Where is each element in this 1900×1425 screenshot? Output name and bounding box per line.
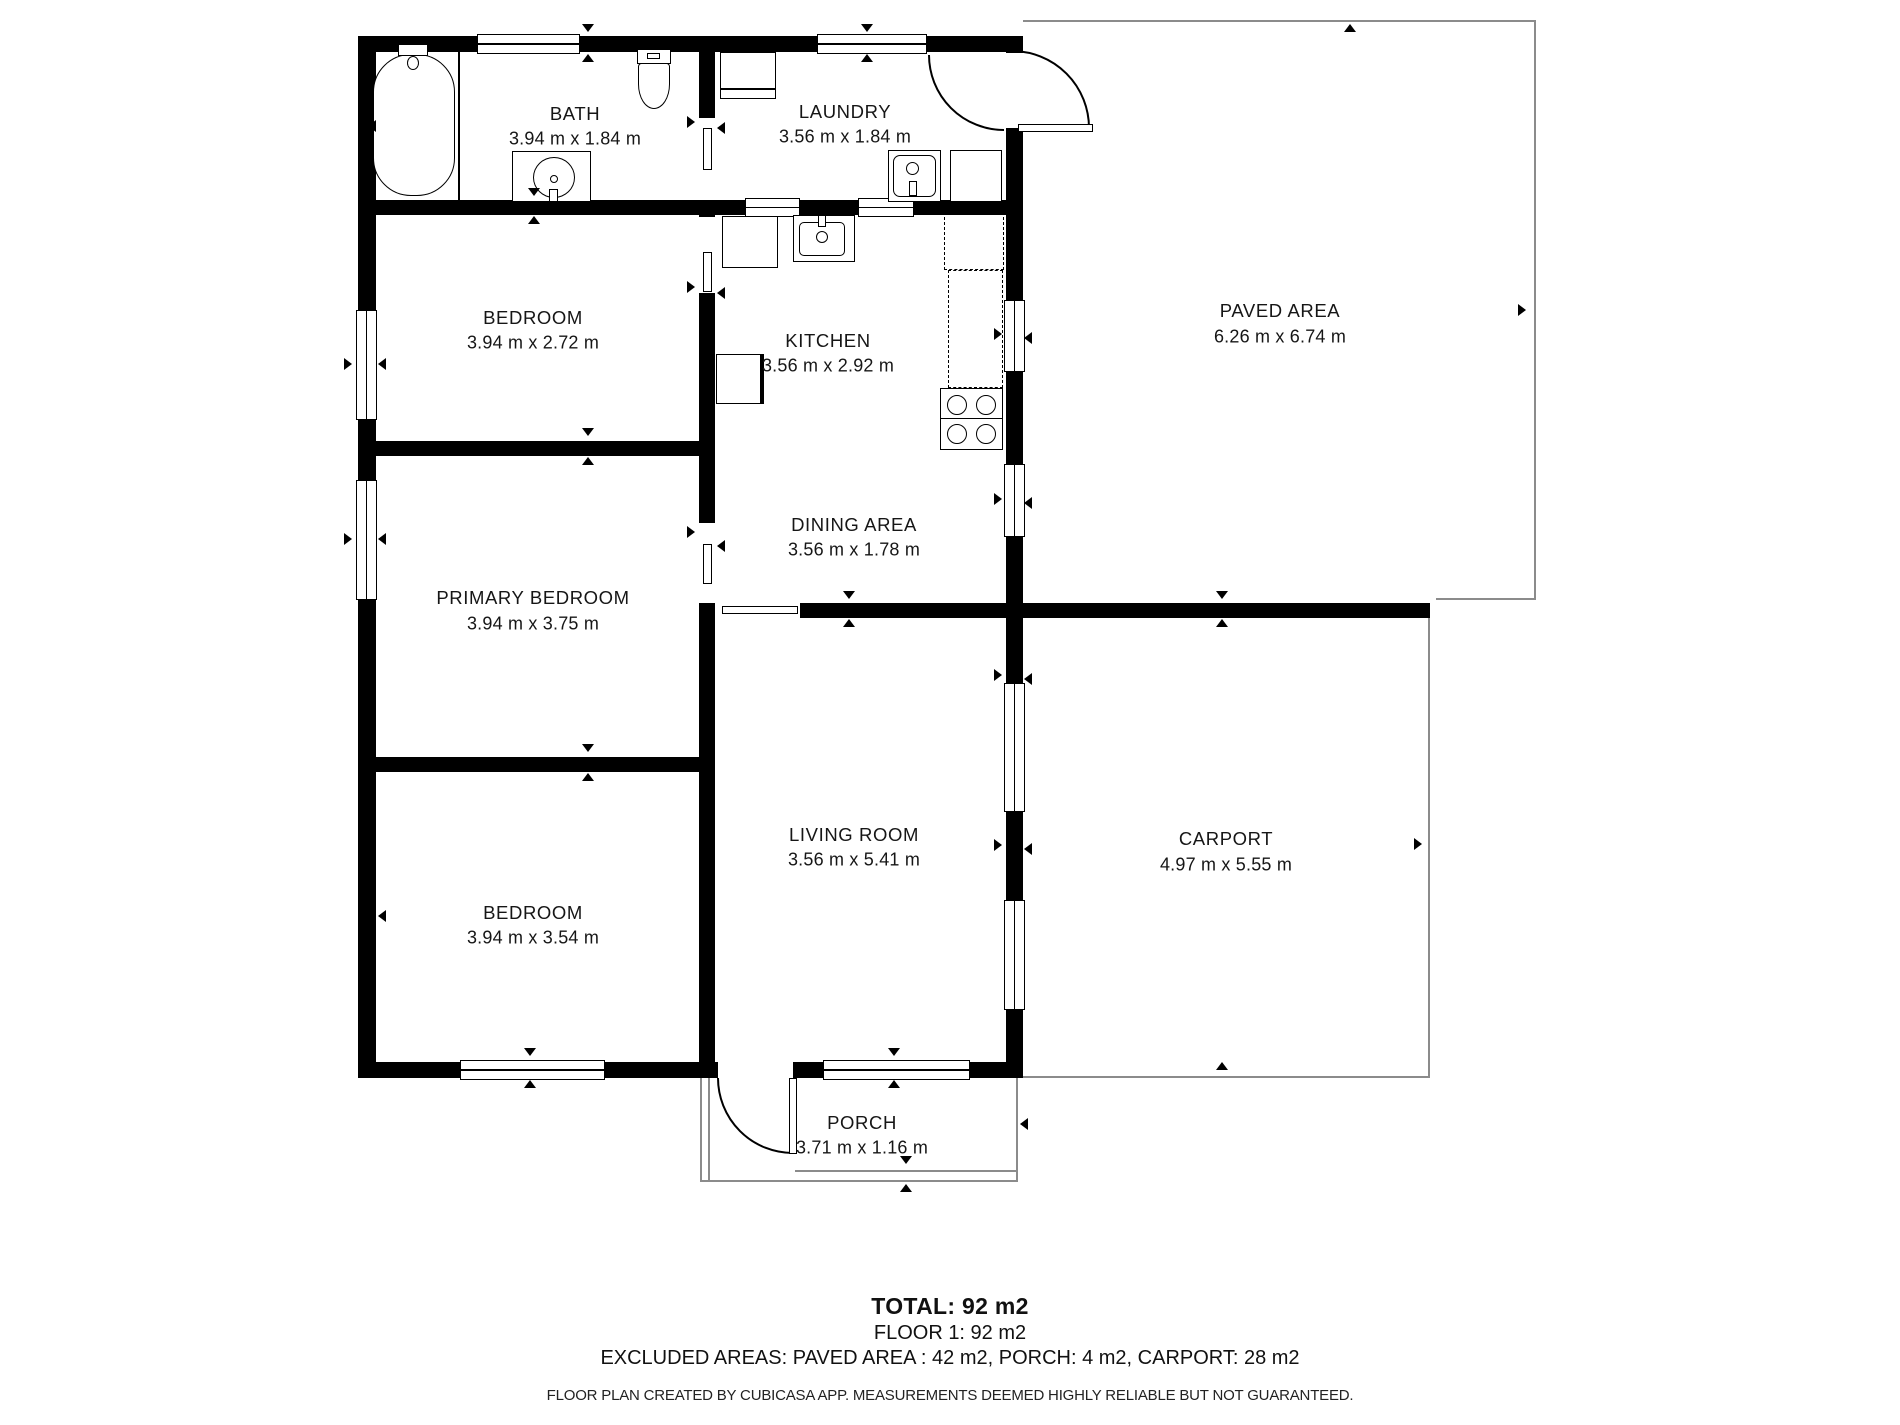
wall-divider-bath: [360, 200, 1023, 215]
front-door-arc: [718, 1078, 793, 1153]
window-bath-north: [477, 34, 580, 54]
measure-arrow: [687, 281, 695, 293]
measure-arrow: [1024, 673, 1032, 685]
room-label-bath: BATH: [550, 103, 600, 125]
measure-arrow: [528, 188, 540, 196]
measure-arrow: [1024, 843, 1032, 855]
measure-arrow: [1216, 591, 1228, 599]
door-opening-laundry-paved: [1006, 53, 1023, 128]
tub-alcove-line: [458, 52, 460, 200]
measure-arrow: [1414, 838, 1422, 850]
window-living-east-b: [1004, 900, 1025, 1010]
room-label-bedroom2: BEDROOM: [483, 902, 583, 924]
porch-outline-left-a: [700, 1078, 702, 1182]
measure-arrow: [378, 910, 386, 922]
stove-divider-line: [941, 418, 1002, 419]
laundry-door-leaf: [1018, 124, 1093, 132]
wall-living-carport: [699, 603, 1430, 618]
porch-outline-right: [1016, 1078, 1018, 1180]
laundry-dryer: [950, 150, 1002, 202]
kitchen-island: [716, 354, 764, 404]
bath-faucet-bracket: [398, 44, 428, 56]
wall-divider-bedroom1: [360, 441, 715, 456]
measure-arrow: [994, 669, 1002, 681]
sliding-door-bath-laundry: [703, 128, 712, 170]
window-living-south: [823, 1060, 970, 1080]
bathtub: [373, 54, 455, 196]
room-label-primary-bedroom: PRIMARY BEDROOM: [436, 587, 629, 609]
excluded-areas-text: EXCLUDED AREAS: PAVED AREA : 42 m2, PORC…: [600, 1347, 1299, 1370]
room-label-kitchen: KITCHEN: [785, 330, 870, 352]
laundry-door-arc-outer: [1012, 51, 1089, 128]
measure-arrow: [843, 619, 855, 627]
room-label-porch: PORCH: [827, 1112, 897, 1134]
total-area-text: TOTAL: 92 m2: [871, 1293, 1028, 1320]
measure-arrow: [582, 24, 594, 32]
room-dims-dining-area: 3.56 m x 1.78 m: [788, 540, 920, 561]
room-dims-bedroom1: 3.94 m x 2.72 m: [467, 333, 599, 354]
laundry-door-arc-inner: [929, 55, 1004, 130]
toilet-flush-button: [647, 53, 660, 59]
stove-burner-3: [947, 424, 967, 444]
kitchen-cabinet: [722, 216, 778, 268]
porch-outline-bottom-inner: [795, 1170, 1016, 1172]
bath-faucet-head: [407, 56, 419, 70]
measure-arrow: [687, 116, 695, 128]
paved-area-outline-top: [1023, 20, 1536, 22]
floorplan-canvas: BATH 3.94 m x 1.84 m LAUNDRY 3.56 m x 1.…: [0, 0, 1900, 1425]
window-bedroom2-south: [460, 1060, 605, 1080]
measure-arrow: [717, 540, 725, 552]
room-dims-primary-bedroom: 3.94 m x 3.75 m: [467, 614, 599, 635]
window-dining-east: [1004, 464, 1025, 537]
room-dims-bedroom2: 3.94 m x 3.54 m: [467, 928, 599, 949]
room-label-carport: CARPORT: [1179, 828, 1273, 850]
measure-arrow: [344, 533, 352, 545]
measure-arrow: [717, 122, 725, 134]
window-bedroom1-west: [356, 310, 377, 420]
measure-arrow: [888, 1048, 900, 1056]
measure-arrow: [1344, 24, 1356, 32]
room-label-bedroom1: BEDROOM: [483, 307, 583, 329]
measure-arrow: [717, 287, 725, 299]
laundry-sink-tap: [909, 181, 917, 196]
measure-arrow: [1024, 332, 1032, 344]
measure-arrow: [1020, 1118, 1028, 1130]
laundry-sink-drain: [906, 162, 919, 175]
disclaimer-text: FLOOR PLAN CREATED BY CUBICASA APP. MEAS…: [547, 1387, 1354, 1404]
measure-arrow: [1216, 619, 1228, 627]
window-kitchen-east: [1004, 300, 1025, 372]
measure-arrow: [582, 457, 594, 465]
measure-arrow: [368, 120, 376, 132]
measure-arrow: [994, 493, 1002, 505]
kitchen-sink-drain: [816, 231, 828, 243]
measure-arrow: [843, 591, 855, 599]
room-dims-kitchen: 3.56 m x 2.92 m: [762, 356, 894, 377]
window-laundry-north: [817, 34, 927, 54]
measure-arrow: [994, 328, 1002, 340]
measure-arrow: [861, 54, 873, 62]
measure-arrow: [994, 839, 1002, 851]
room-label-laundry: LAUNDRY: [799, 101, 891, 123]
measure-arrow: [344, 358, 352, 370]
sliding-door-kitchen-bedroom: [703, 252, 712, 292]
measure-arrow: [1216, 1062, 1228, 1070]
carport-outline-right: [1428, 612, 1430, 1078]
toilet-bowl: [638, 63, 670, 109]
measure-arrow: [900, 1184, 912, 1192]
stove-burner-2: [976, 395, 996, 415]
upper-cabinet-dashed: [944, 212, 1004, 270]
measure-arrow: [1024, 497, 1032, 509]
measure-arrow: [1518, 304, 1526, 316]
paved-area-outline-bottom: [1436, 598, 1536, 600]
room-label-living-room: LIVING ROOM: [789, 824, 919, 846]
floor-area-text: FLOOR 1: 92 m2: [874, 1322, 1026, 1345]
room-dims-bath: 3.94 m x 1.84 m: [509, 129, 641, 150]
measure-arrow: [378, 533, 386, 545]
measure-arrow: [861, 24, 873, 32]
room-dims-paved-area: 6.26 m x 6.74 m: [1214, 327, 1346, 348]
measure-arrow: [524, 1048, 536, 1056]
washing-machine-door-line: [721, 88, 775, 90]
measure-arrow: [524, 1080, 536, 1088]
room-label-paved-area: PAVED AREA: [1220, 300, 1340, 322]
measure-arrow: [687, 526, 695, 538]
wall-divider-primary: [360, 757, 715, 772]
room-dims-porch: 3.71 m x 1.16 m: [796, 1138, 928, 1159]
room-dims-living-room: 3.56 m x 5.41 m: [788, 850, 920, 871]
bath-sink-tap: [549, 189, 558, 202]
measure-arrow: [582, 744, 594, 752]
kitchen-sink-tap: [818, 215, 826, 227]
sliding-door-dining-living: [722, 606, 798, 614]
room-dims-carport: 4.97 m x 5.55 m: [1160, 855, 1292, 876]
sliding-door-dining-primary: [703, 544, 712, 584]
measure-arrow: [378, 358, 386, 370]
measure-arrow: [582, 428, 594, 436]
bath-sink-drain: [550, 175, 558, 183]
room-dims-laundry: 3.56 m x 1.84 m: [779, 127, 911, 148]
room-label-dining-area: DINING AREA: [791, 514, 917, 536]
measure-arrow: [888, 1080, 900, 1088]
measure-arrow: [528, 216, 540, 224]
stove-burner-4: [976, 424, 996, 444]
door-opening-front: [718, 1062, 793, 1078]
measure-arrow: [582, 773, 594, 781]
measure-arrow: [582, 54, 594, 62]
porch-outline-bottom: [700, 1180, 1018, 1182]
window-living-east-a: [1004, 683, 1025, 812]
window-primary-west: [356, 480, 377, 600]
window-laundry-kitchen-a: [745, 198, 800, 217]
paved-area-outline-right: [1534, 20, 1536, 600]
carport-outline-bottom: [1023, 1076, 1430, 1078]
stove-burner-1: [947, 395, 967, 415]
washing-machine: [720, 52, 776, 99]
porch-outline-left-b: [708, 1078, 710, 1182]
